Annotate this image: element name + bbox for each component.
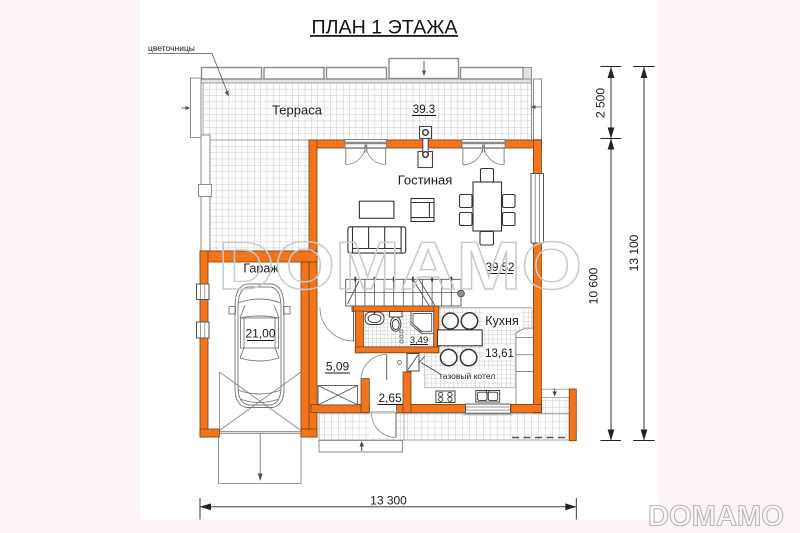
- svg-text:DOMAMO: DOMAMO: [648, 501, 784, 533]
- svg-text:13 300: 13 300: [370, 494, 407, 508]
- svg-text:газовый котел: газовый котел: [440, 371, 495, 381]
- svg-text:2 500: 2 500: [594, 88, 608, 118]
- svg-text:Гостиная: Гостиная: [398, 173, 453, 188]
- svg-text:21,00: 21,00: [245, 327, 275, 341]
- svg-text:39.3: 39.3: [413, 104, 435, 116]
- svg-text:5,09: 5,09: [326, 360, 350, 374]
- svg-text:10 600: 10 600: [587, 267, 601, 304]
- svg-text:13,61: 13,61: [485, 348, 514, 360]
- svg-text:DOMAMO: DOMAMO: [218, 228, 582, 304]
- svg-text:13 100: 13 100: [627, 234, 641, 271]
- svg-text:Кухня: Кухня: [485, 314, 518, 328]
- svg-text:2,65: 2,65: [378, 391, 402, 405]
- svg-text:цветочницы: цветочницы: [148, 43, 195, 53]
- svg-text:Терраса: Терраса: [272, 103, 323, 118]
